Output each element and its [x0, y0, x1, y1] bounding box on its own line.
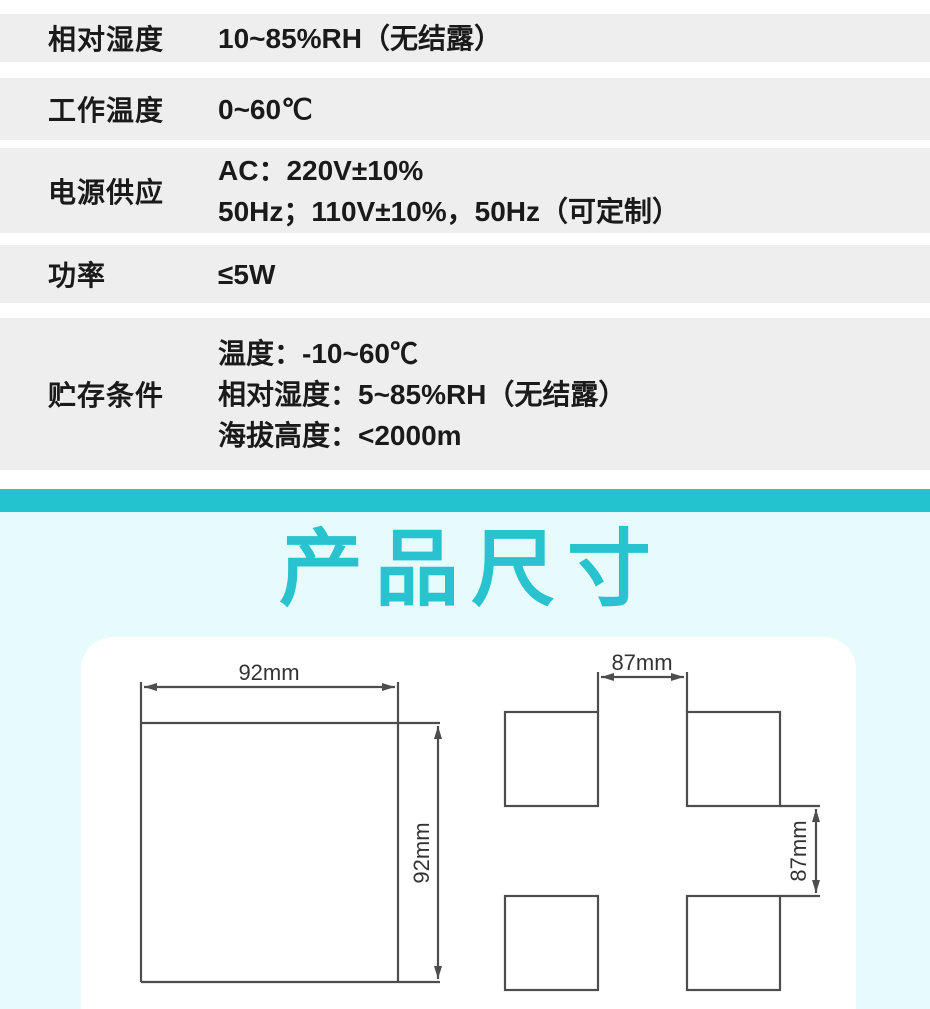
teal-divider-bar	[0, 489, 930, 512]
spec-value-line: 相对湿度：5~85%RH（无结露）	[218, 374, 626, 415]
spec-value: 温度：-10~60℃ 相对湿度：5~85%RH（无结露） 海拔高度：<2000m	[218, 333, 626, 456]
spec-value-line: AC：220V±10%	[218, 150, 680, 191]
spec-value-line: 海拔高度：<2000m	[218, 415, 626, 456]
product-spec-page: 相对湿度 10~85%RH（无结露） 工作温度 0~60℃ 电源供应 AC：22…	[0, 0, 930, 1009]
spec-value: 0~60℃	[218, 89, 313, 130]
spec-label: 贮存条件	[0, 374, 218, 414]
spec-label: 功率	[0, 254, 218, 294]
spec-row-humidity: 相对湿度 10~85%RH（无结露）	[0, 14, 930, 62]
corner-block-bottom-right	[687, 896, 780, 990]
front-view-drawing	[141, 682, 440, 982]
spec-label: 电源供应	[0, 171, 218, 211]
spec-row-power-supply: 电源供应 AC：220V±10% 50Hz；110V±10%，50Hz（可定制）	[0, 148, 930, 233]
corner-block-bottom-left	[505, 896, 598, 990]
spec-label: 工作温度	[0, 89, 218, 129]
spec-value: 10~85%RH（无结露）	[218, 18, 502, 59]
cutout-height-label: 87mm	[786, 820, 811, 881]
cutout-width-label: 87mm	[611, 650, 672, 675]
spec-value: AC：220V±10% 50Hz；110V±10%，50Hz（可定制）	[218, 150, 680, 232]
spec-value-line: 0~60℃	[218, 89, 313, 130]
spec-value-line: ≤5W	[218, 254, 275, 295]
section-title: 产品尺寸	[0, 514, 930, 624]
cutout-view-drawing	[505, 672, 820, 990]
spec-value: ≤5W	[218, 254, 275, 295]
spec-value-line: 温度：-10~60℃	[218, 333, 626, 374]
front-height-label: 92mm	[409, 822, 434, 883]
dimension-drawing-card: 92mm 92mm	[81, 637, 856, 1009]
spec-label: 相对湿度	[0, 18, 218, 58]
front-width-label: 92mm	[238, 660, 299, 685]
spec-row-storage-conditions: 贮存条件 温度：-10~60℃ 相对湿度：5~85%RH（无结露） 海拔高度：<…	[0, 318, 930, 470]
dimension-drawings: 92mm 92mm	[81, 637, 856, 1009]
spec-value-line: 50Hz；110V±10%，50Hz（可定制）	[218, 191, 680, 232]
corner-block-top-left	[505, 712, 598, 806]
spec-row-working-temp: 工作温度 0~60℃	[0, 78, 930, 140]
spec-value-line: 10~85%RH（无结露）	[218, 18, 502, 59]
spec-row-power: 功率 ≤5W	[0, 245, 930, 303]
product-dimensions-section: 产品尺寸	[0, 512, 930, 1009]
corner-block-top-right	[687, 712, 780, 806]
